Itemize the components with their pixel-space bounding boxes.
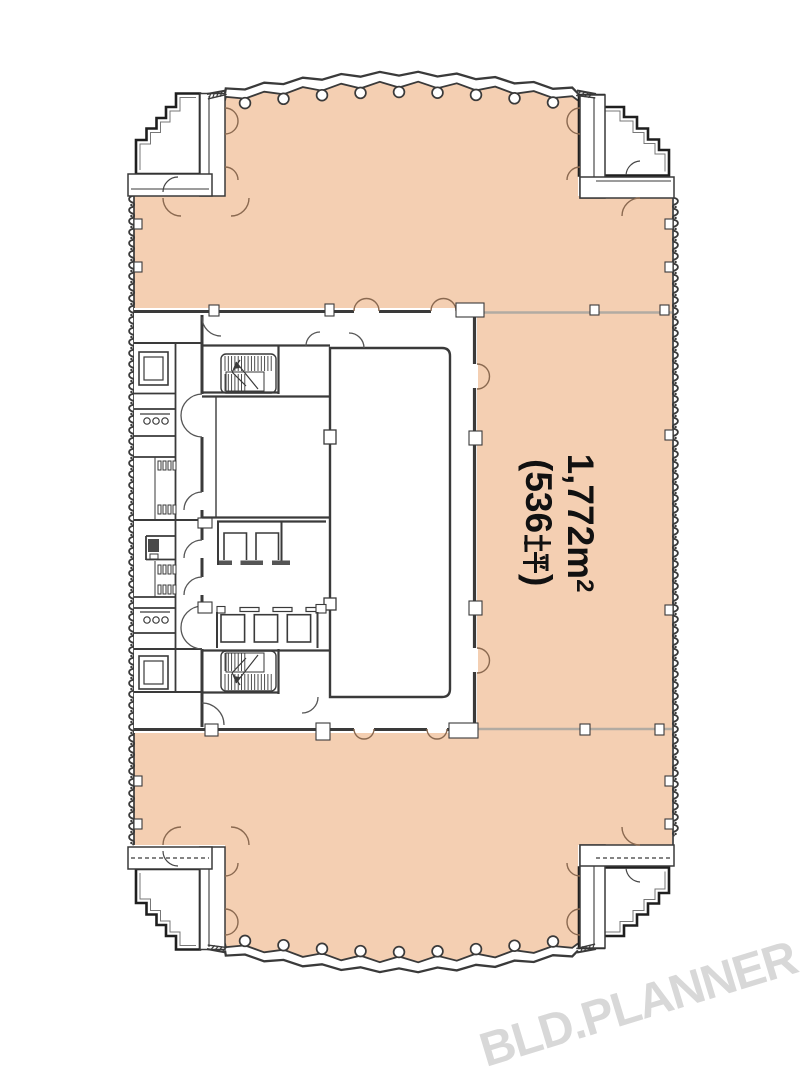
svg-text:1,772m2: 1,772m2 [560,454,601,593]
svg-text:): ) [518,574,559,586]
svg-text:(536: (536 [518,459,559,533]
